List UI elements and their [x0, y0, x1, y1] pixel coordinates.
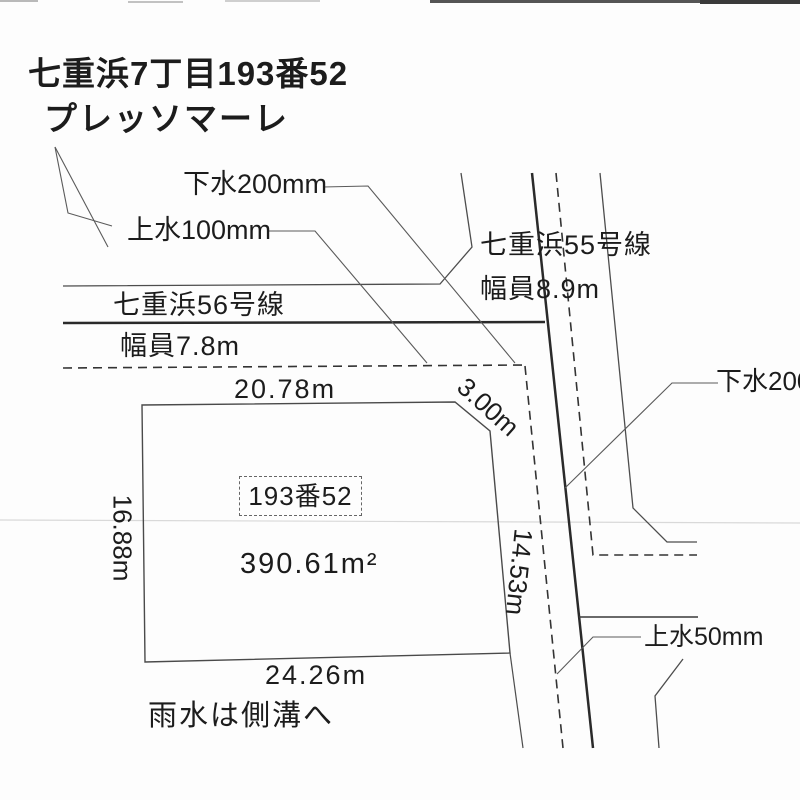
- rainwater-note: 雨水は側溝へ: [148, 701, 334, 733]
- road-55-east-edge-lower: [655, 659, 683, 748]
- dim-top-edge: 20.78m: [234, 375, 336, 405]
- lot-area: 390.61m²: [240, 549, 379, 581]
- road-55-width: 幅員8.9m: [480, 275, 600, 305]
- road-56-south-edge: [63, 322, 545, 323]
- lot-number-box: 193番52: [239, 476, 362, 516]
- sewer-200-right-label: 下水200mm: [716, 367, 800, 396]
- dim-bottom-edge: 24.26m: [265, 661, 367, 691]
- plot-right-edge-extension: [510, 653, 523, 748]
- title-leader-b: [55, 147, 108, 247]
- plot-boundary: [142, 402, 510, 662]
- road-55-east-edge: [600, 173, 697, 542]
- water-50-label: 上水50mm: [644, 624, 763, 652]
- water-pipe-road56: [63, 365, 526, 368]
- water-main-leader: [267, 231, 427, 363]
- title-leader-a: [55, 147, 112, 226]
- sewer-right-leader: [565, 383, 718, 488]
- road-56-name: 七重浜56号線: [113, 291, 285, 321]
- water-100-label: 上水100mm: [127, 216, 271, 246]
- page-title: 七重浜7丁目193番52: [28, 56, 348, 92]
- road-56-width: 幅員7.8m: [120, 332, 240, 362]
- sewer-200-label: 下水200mm: [183, 170, 327, 200]
- survey-diagram-page: 七重浜7丁目193番52 プレッソマーレ 下水200mm 上水100mm 七重浜…: [0, 0, 800, 800]
- road-55-name: 七重浜55号線: [480, 231, 652, 261]
- building-name: プレッソマーレ: [44, 101, 289, 137]
- dim-left-edge: 16.88m: [108, 495, 137, 582]
- lot-number: 193番52: [248, 482, 352, 511]
- water-right-leader: [557, 637, 641, 674]
